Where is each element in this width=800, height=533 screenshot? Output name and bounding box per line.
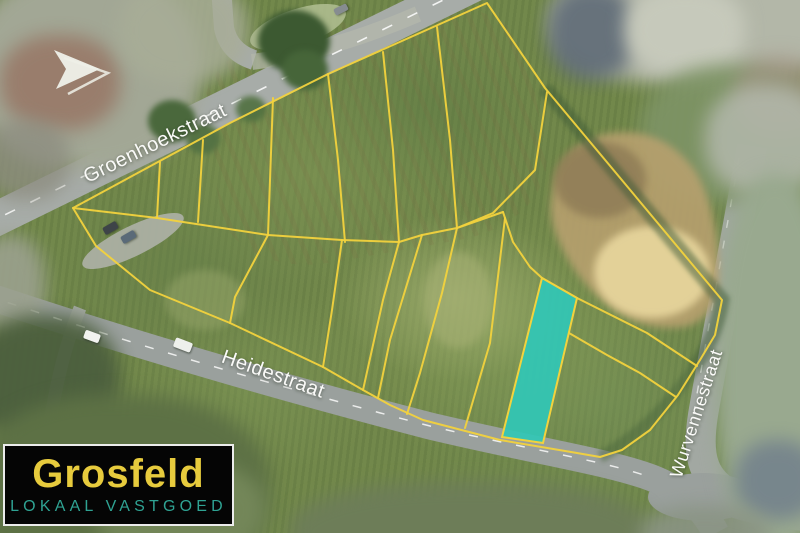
- brand-logo: Grosfeld LOKAAL VASTGOED: [3, 444, 234, 526]
- parcel-divider: [437, 27, 457, 228]
- parcel-divider: [457, 92, 547, 228]
- brand-name: Grosfeld: [32, 454, 204, 494]
- aerial-map: Groenhoekstraat Heidestraat Wurvennestra…: [0, 0, 800, 533]
- parcel-divider: [363, 242, 399, 390]
- parcel-divider: [323, 240, 342, 367]
- highlighted-plot[interactable]: [502, 278, 577, 443]
- parcel-divider: [503, 212, 542, 278]
- parcel-divider: [198, 140, 203, 222]
- parcel-divider: [268, 98, 273, 235]
- brand-tagline: LOKAAL VASTGOED: [10, 498, 227, 516]
- parcel-divider: [383, 52, 399, 242]
- arrow-icon: [44, 42, 116, 108]
- parcel-divider: [157, 162, 160, 218]
- parcel-divider: [328, 74, 345, 242]
- pale-grass-patch: [424, 252, 492, 348]
- parcel-divider: [378, 235, 422, 398]
- pale-grass-patch: [165, 270, 245, 330]
- spine-line: [73, 208, 503, 242]
